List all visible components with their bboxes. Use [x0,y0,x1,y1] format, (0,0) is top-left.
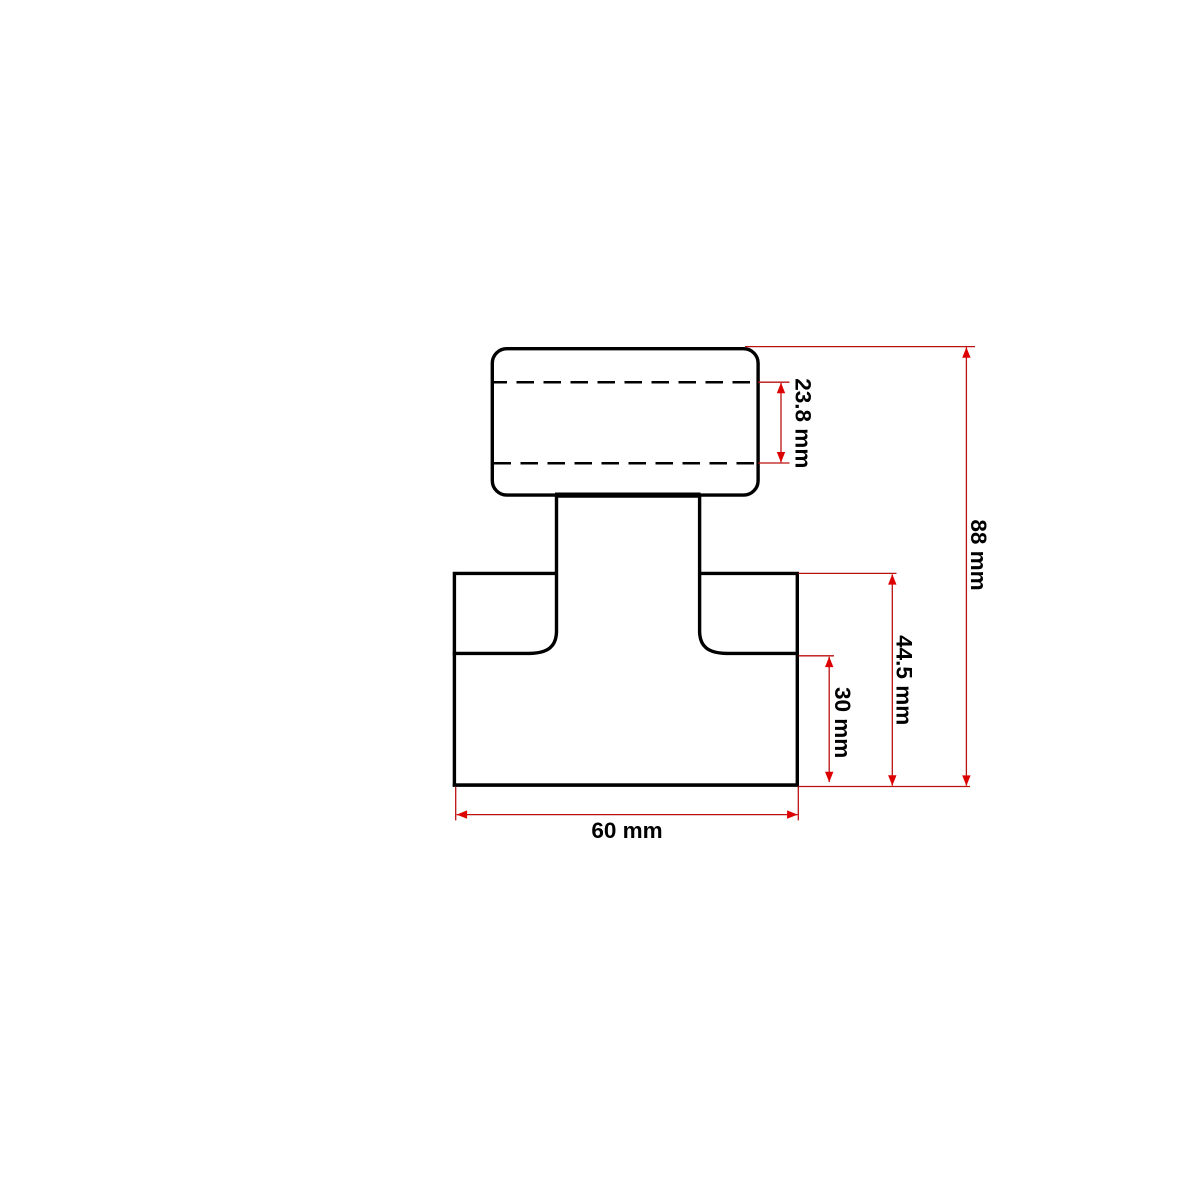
svg-text:60 mm: 60 mm [591,818,662,843]
svg-text:88 mm: 88 mm [966,519,991,590]
svg-text:30 mm: 30 mm [830,687,855,758]
svg-text:44.5 mm: 44.5 mm [892,635,917,725]
svg-text:23.8 mm: 23.8 mm [791,378,816,468]
